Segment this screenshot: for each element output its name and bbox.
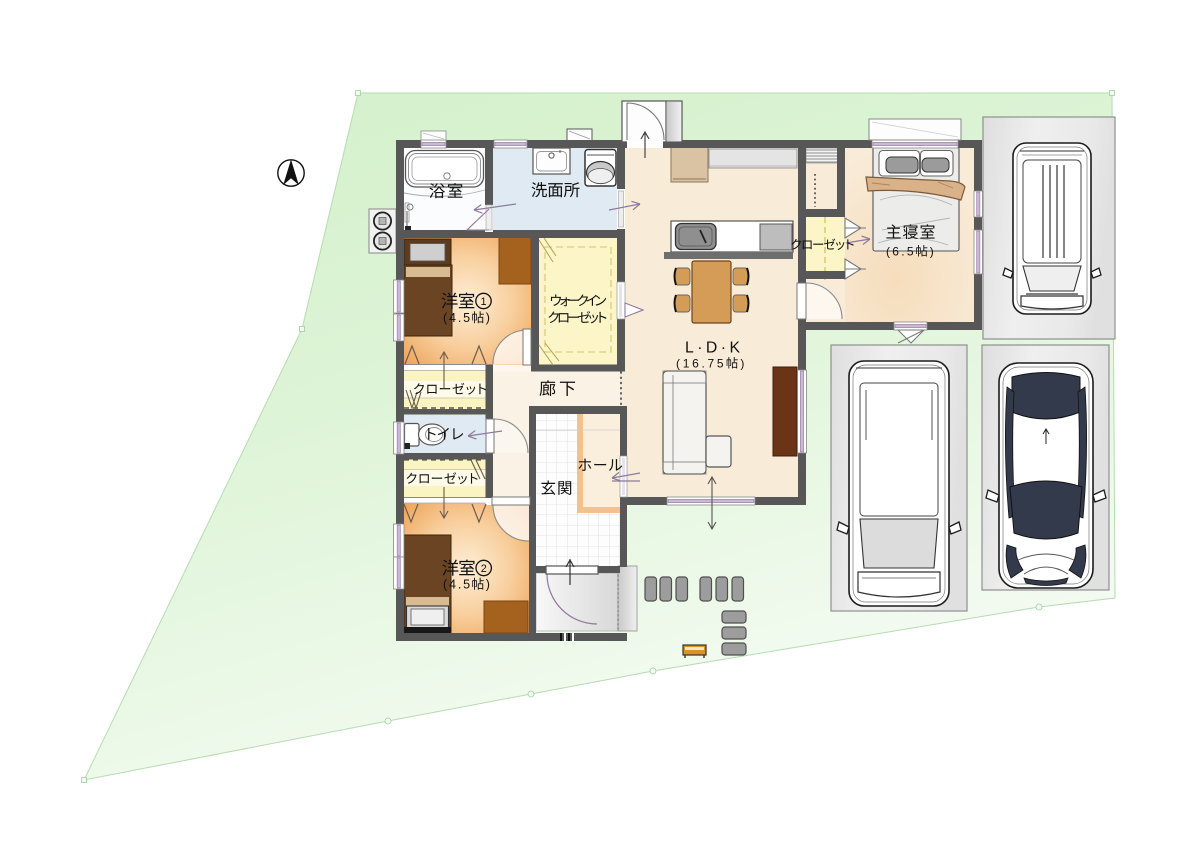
svg-text:): ) (486, 311, 490, 325)
svg-text:): ) (740, 357, 744, 371)
svg-text:1: 1 (480, 296, 486, 308)
svg-text:2: 2 (481, 563, 487, 575)
svg-text:): ) (486, 578, 490, 592)
svg-text:): ) (930, 245, 934, 259)
svg-text:L·D·K: L·D·K (685, 339, 740, 356)
